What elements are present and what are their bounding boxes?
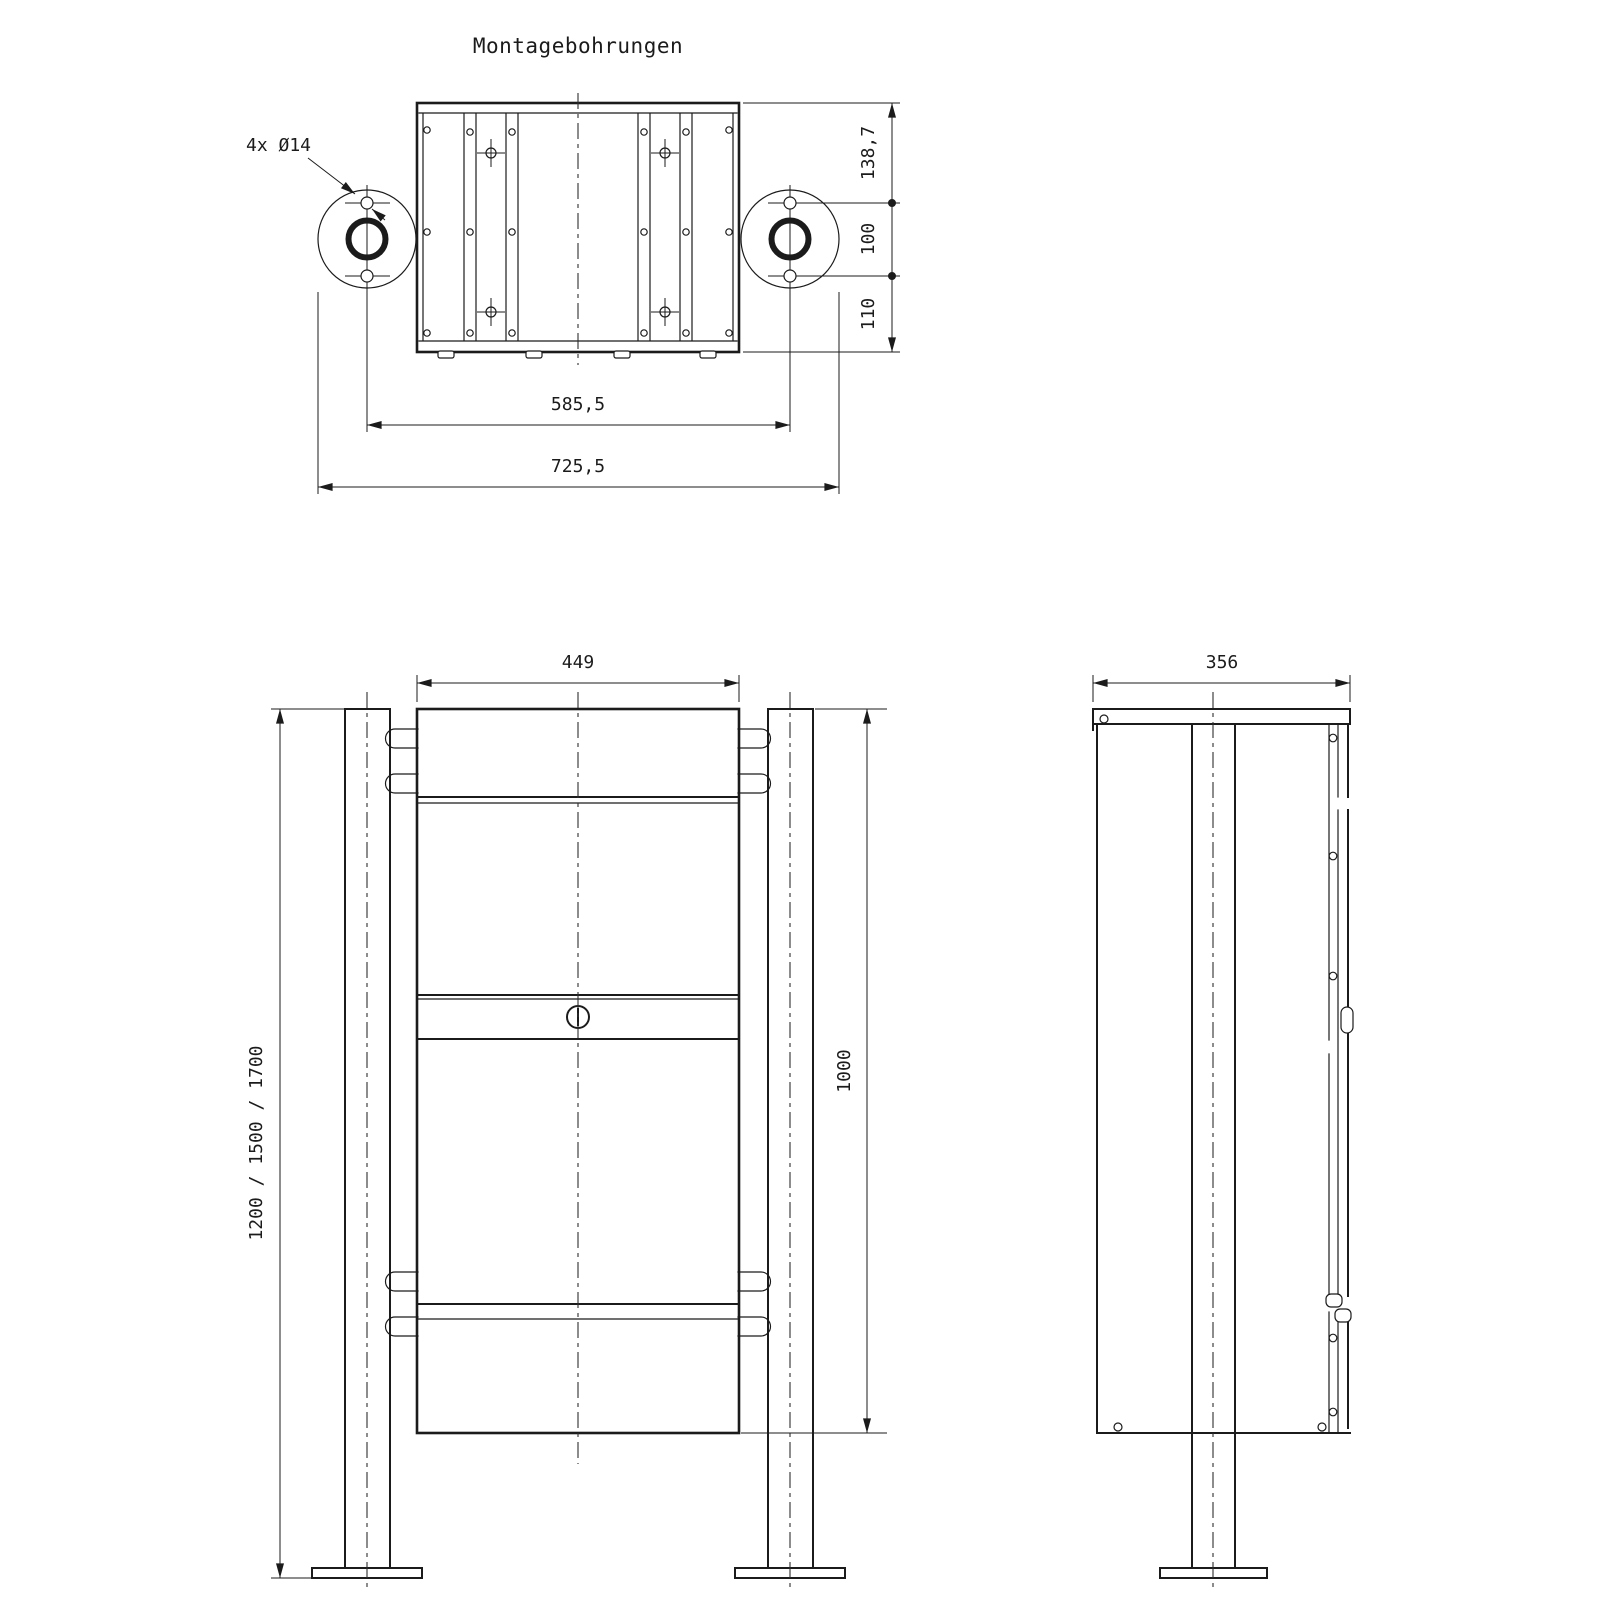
side-view: 356 [1093, 652, 1353, 1592]
bracket [738, 1272, 771, 1291]
lid-screw [1100, 715, 1108, 723]
bracket [738, 1317, 771, 1336]
drawing-title: Montagebohrungen [473, 34, 683, 58]
dim-body-depth: 356 [1093, 652, 1350, 702]
hinge-tab [1326, 1294, 1342, 1307]
dim-text: 725,5 [551, 456, 605, 477]
dim-text: 138,7 [858, 126, 879, 180]
dim-node [888, 272, 896, 280]
anchor-hole [361, 270, 373, 282]
dim-text: 356 [1206, 652, 1239, 673]
dim-text: 449 [562, 652, 595, 673]
bottom-screw [1114, 1423, 1122, 1431]
hinge-tab [1335, 1309, 1351, 1322]
anchor-hole [784, 197, 796, 209]
lid-side [1093, 709, 1350, 724]
bracket [738, 729, 771, 748]
anchor-hole [784, 270, 796, 282]
hinge-screw [1329, 852, 1337, 860]
left-post [345, 709, 390, 1568]
dim-post-height: 1200 / 1500 / 1700 [246, 709, 345, 1578]
bottom-screw [1318, 1423, 1326, 1431]
top-view: Montagebohrungen [246, 34, 900, 494]
hinge-screw [1329, 1408, 1337, 1416]
right-post [768, 709, 813, 1568]
front-view: 449 1200 / 1500 / 1700 1000 [246, 652, 887, 1592]
left-post-flange [318, 185, 416, 432]
technical-drawing-page: Montagebohrungen [0, 0, 1600, 1600]
hinge-screw [1329, 1334, 1337, 1342]
technical-drawing: Montagebohrungen [0, 0, 1600, 1600]
hinge-screw [1329, 734, 1337, 742]
door-edge [1326, 724, 1353, 1433]
dim-text: 110 [858, 298, 879, 331]
lock-side-bump [1341, 1007, 1353, 1033]
dim-text: 100 [858, 223, 879, 256]
anchor-hole [361, 197, 373, 209]
hole-callout-label: 4x Ø14 [246, 135, 311, 156]
dim-node [888, 199, 896, 207]
dim-hole-center-distance: 585,5 [367, 394, 790, 425]
dim-text: 585,5 [551, 394, 605, 415]
dim-text: 1000 [834, 1049, 855, 1092]
hinge-screw [1329, 972, 1337, 980]
bracket [738, 774, 771, 793]
leader-line [308, 158, 355, 194]
dim-text: 1200 / 1500 / 1700 [246, 1045, 267, 1240]
